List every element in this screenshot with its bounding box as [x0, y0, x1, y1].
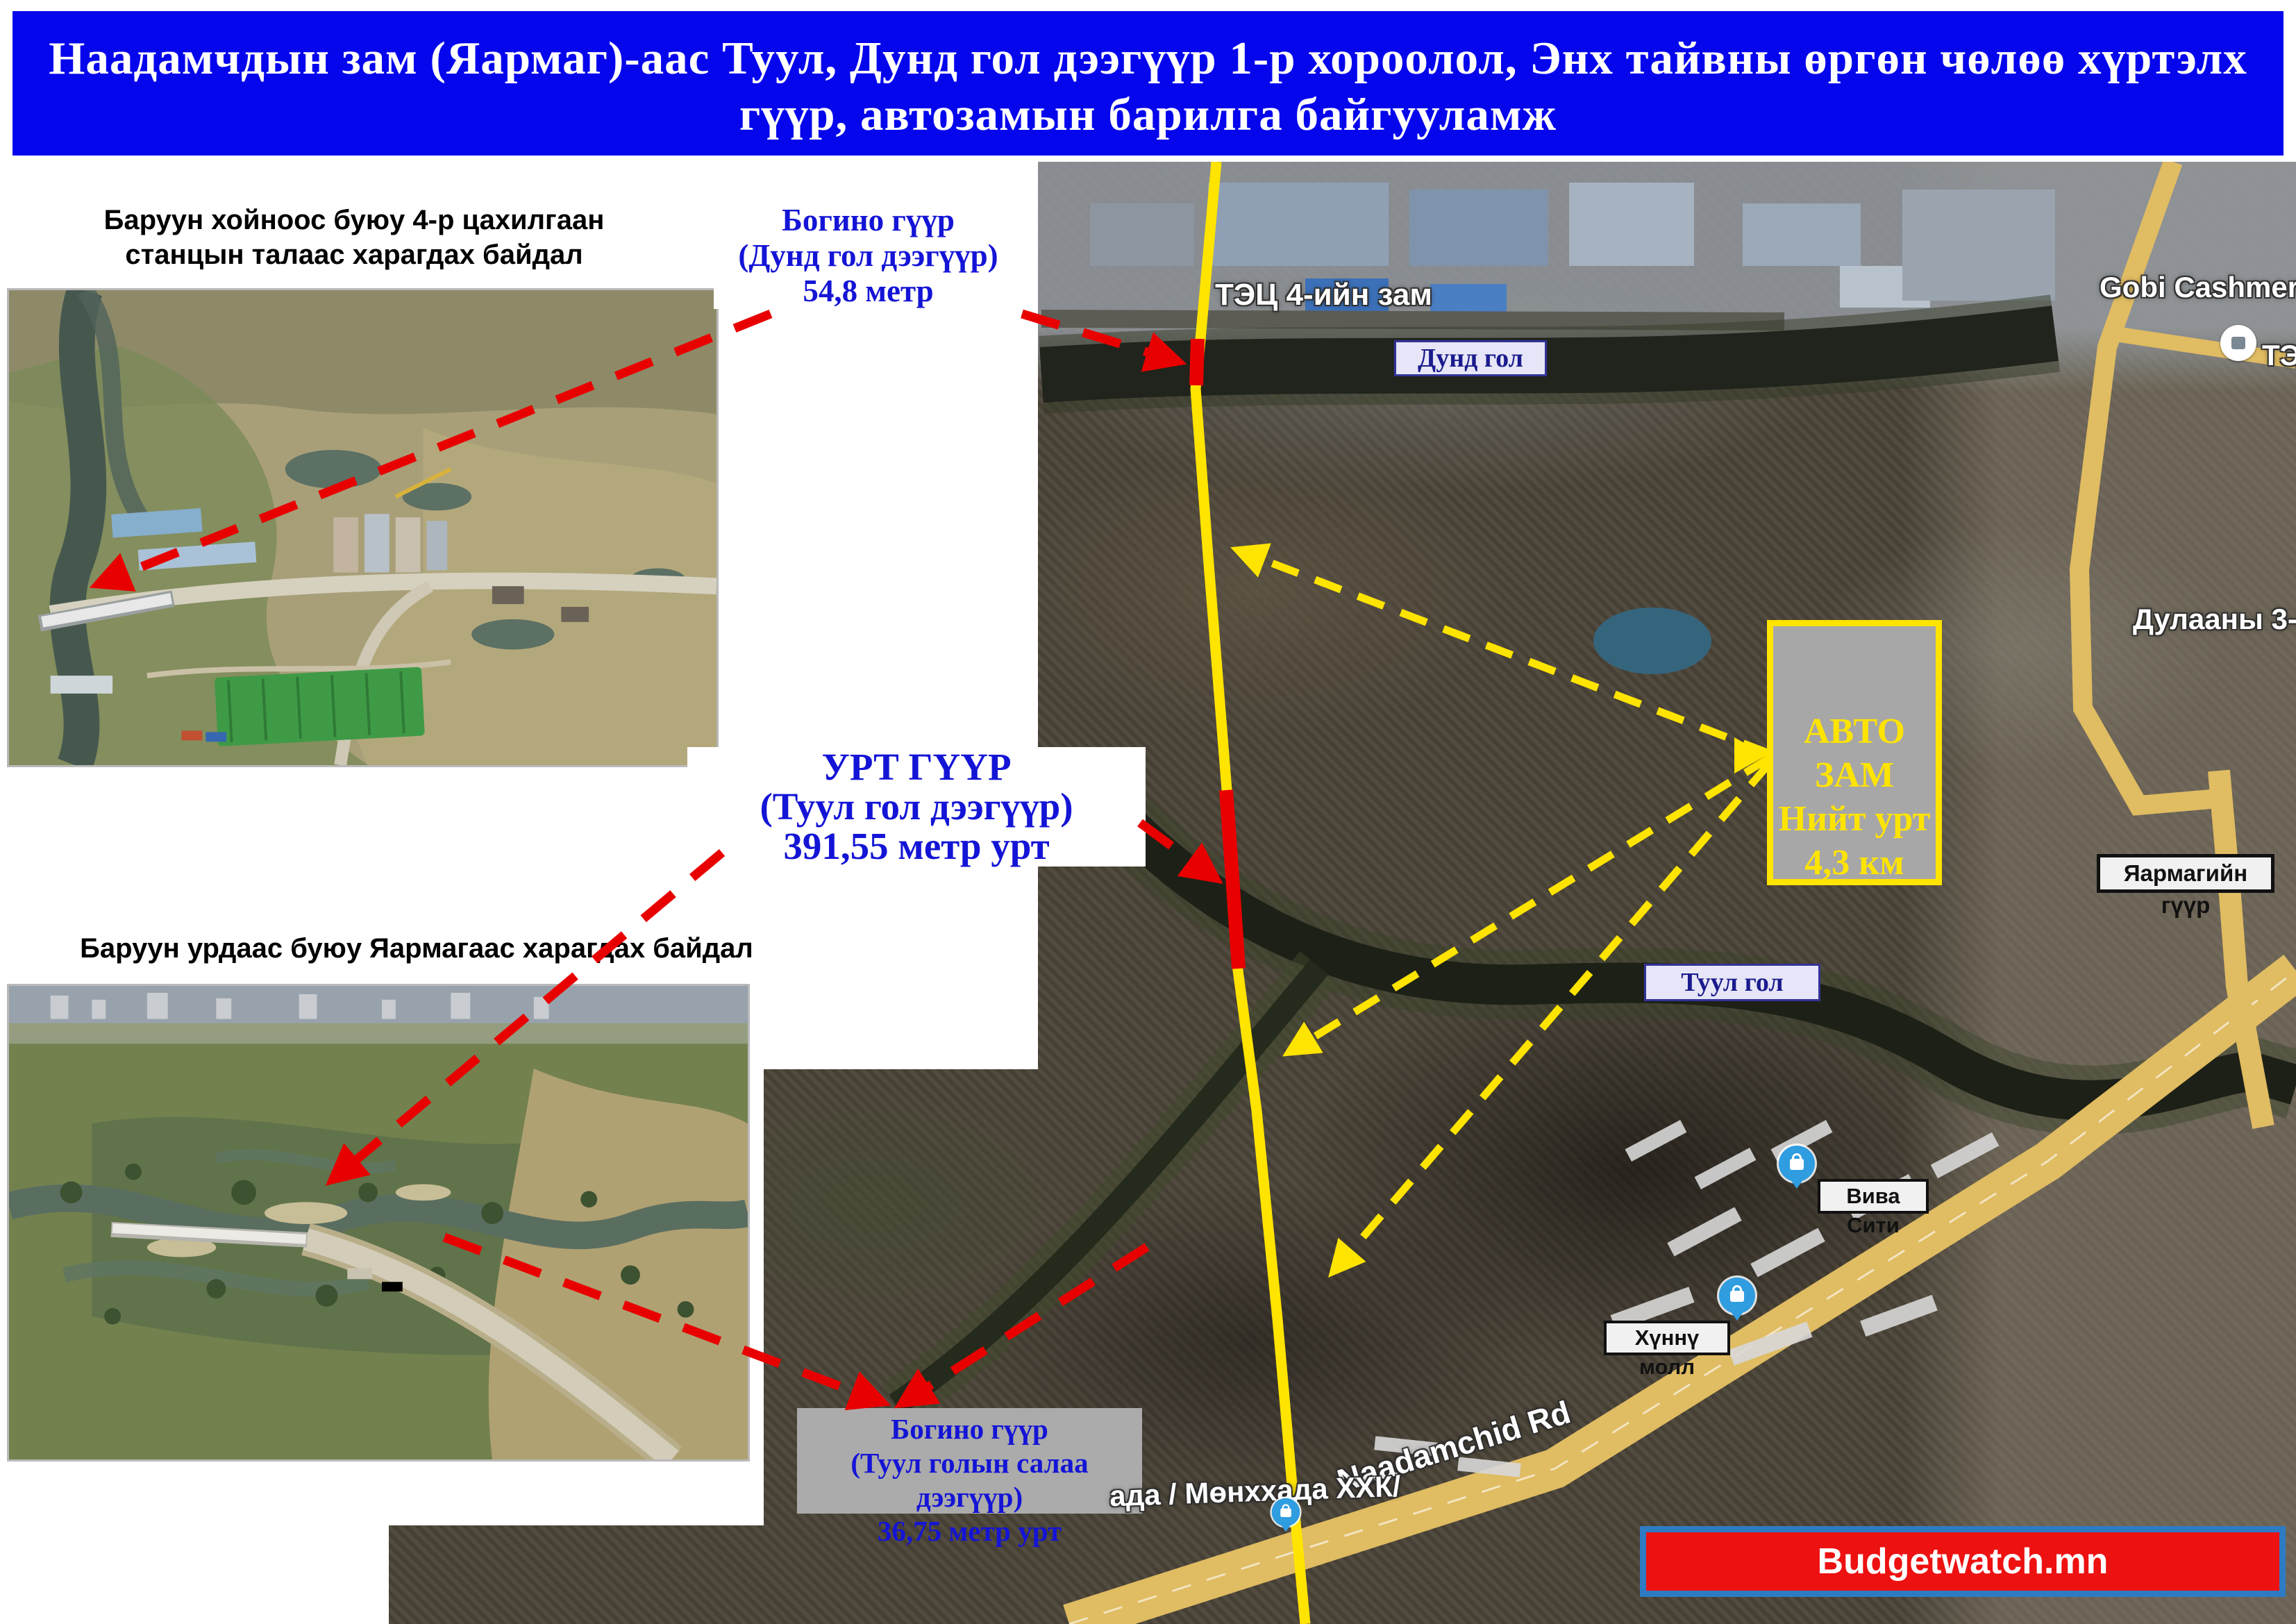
bag-icon	[1280, 1509, 1291, 1517]
callout3-line2: (Туул голын салаа дээгүүр)	[797, 1446, 1142, 1514]
callout-short-bridge-dund: Богино гүүр (Дунд гол дээгүүр) 54,8 метр	[714, 199, 1023, 309]
factory-pin-icon	[2220, 325, 2256, 361]
pond	[1593, 608, 1711, 674]
label-tuul-gol: Туул гол	[1644, 964, 1820, 1001]
label-gobi-cashmere: Gobi Cashmere Fac	[2100, 271, 2296, 304]
label-viva-city: Вива Сити	[1818, 1179, 1929, 1214]
label-yarmag-bridge: Яармагийн гүүр	[2097, 854, 2274, 893]
callout2-line1: УРТ ГҮҮР	[687, 747, 1146, 787]
label-dulaany: Дулааны 3-р Ц	[2133, 603, 2296, 636]
photo2-caption: Баруун урдаас буюу Яармагаас харагдах ба…	[69, 932, 764, 965]
label-tets4-road: ТЭЦ 4-ийн зам	[1215, 278, 1432, 312]
callout1-line1: Богино гүүр	[714, 203, 1023, 238]
callout2-line2: (Туул гол дээгүүр)	[687, 787, 1146, 826]
auto-road-line4: 4,3 км	[1773, 841, 1936, 885]
photo-northwest-view	[7, 288, 719, 767]
callout3-line3: 36,75 метр урт	[797, 1514, 1142, 1548]
callout3-line1: Богино гүүр	[797, 1412, 1142, 1446]
page-title-line1: Наадамчдын зам (Яармаг)-аас Туул, Дунд г…	[12, 29, 2284, 87]
callout-short-bridge-salaa: Богино гүүр (Туул голын салаа дээгүүр) 3…	[797, 1408, 1142, 1514]
photo-southwest-view	[7, 984, 750, 1462]
shopping-pin-icon-munkhhada	[1272, 1498, 1300, 1527]
factory-icon	[2231, 337, 2245, 349]
label-hunnu-mall: Хүннү молл	[1604, 1321, 1730, 1355]
auto-road-line2: ЗАМ	[1773, 753, 1936, 797]
callout2-line3: 391,55 метр урт	[687, 826, 1146, 866]
tets-road	[1041, 319, 1784, 321]
brand-text: Budgetwatch.mn	[1818, 1541, 2109, 1582]
tuul-branch-river	[896, 967, 1319, 1405]
short-bridge-segment	[1196, 339, 1198, 385]
page-title-line2: гүүр, автозамын барилга байгууламж	[12, 87, 2284, 142]
label-te-partial: ТЭ	[2262, 339, 2296, 372]
photo2-art	[9, 986, 748, 1459]
callout-auto-road: АВТО ЗАМ Нийт урт 4,3 км	[1767, 620, 1942, 885]
brand-banner: Budgetwatch.mn	[1640, 1526, 2286, 1597]
callout1-line2: (Дунд гол дээгүүр)	[714, 238, 1023, 274]
auto-road-line3: Нийт урт	[1773, 797, 1936, 841]
bag-icon	[1730, 1291, 1744, 1302]
callout-long-bridge: УРТ ГҮҮР (Туул гол дээгүүр) 391,55 метр …	[687, 747, 1146, 867]
photo1-art	[9, 290, 717, 765]
label-dund-gol: Дунд гол	[1394, 340, 1547, 376]
shopping-pin-icon-viva	[1779, 1146, 1815, 1182]
infographic-canvas: Наадамчдын зам (Яармаг)-аас Туул, Дунд г…	[0, 0, 2296, 1624]
auto-road-line1: АВТО	[1773, 710, 1936, 753]
green-warehouse	[215, 667, 425, 746]
title-banner: Наадамчдын зам (Яармаг)-аас Туул, Дунд г…	[12, 11, 2284, 156]
shopping-pin-icon-hunnu	[1719, 1278, 1755, 1314]
callout1-line3: 54,8 метр	[714, 274, 1023, 309]
photo1-caption: Баруун хойноос буюу 4-р цахилгаан станцы…	[42, 203, 667, 272]
bag-icon	[1790, 1159, 1804, 1170]
